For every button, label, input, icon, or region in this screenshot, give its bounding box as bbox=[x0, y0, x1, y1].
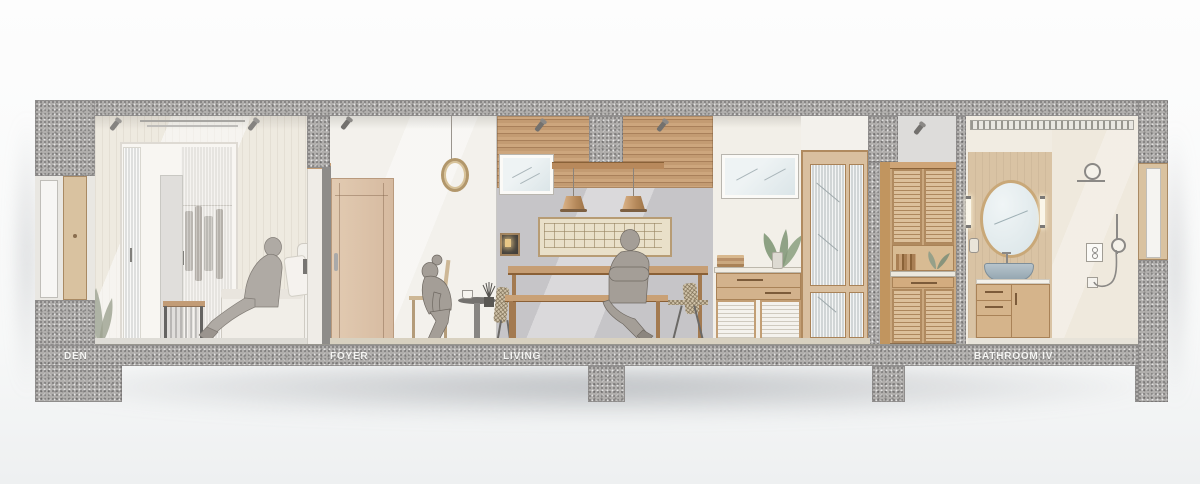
drawer-handle-icon bbox=[985, 306, 1003, 308]
pendant-lamp-rim bbox=[620, 209, 647, 212]
pendant-lamp-rim bbox=[560, 209, 587, 212]
door-panel-line bbox=[383, 183, 384, 341]
vanity-drawer-line bbox=[977, 315, 1011, 316]
glass-door-pane bbox=[849, 164, 864, 286]
vanity-divider bbox=[1011, 285, 1012, 337]
bathroom-shower-wall bbox=[1052, 130, 1138, 342]
wardrobe-handle-icon bbox=[130, 248, 132, 262]
books-stack bbox=[717, 255, 744, 267]
architectural-section-drawing: DEN FOYER LIVING BATHROOM IV bbox=[0, 0, 1200, 484]
bathroom-ceiling-vent bbox=[970, 120, 1134, 130]
drawer-handle-icon bbox=[765, 292, 791, 294]
woman-seated-silhouette bbox=[403, 250, 465, 348]
cabinet-louver-door bbox=[892, 289, 922, 343]
den-ceiling-diffuser bbox=[140, 120, 245, 122]
pendant-cord bbox=[633, 168, 634, 196]
cabinet-column-top bbox=[868, 116, 898, 162]
drawer-handle-icon bbox=[737, 279, 763, 281]
dining-chair-right-seat bbox=[668, 300, 708, 305]
drawer-divider bbox=[717, 287, 800, 288]
partition-wall bbox=[307, 168, 323, 345]
sideboard-drawers bbox=[716, 273, 801, 300]
top-slab bbox=[35, 100, 1168, 116]
vanity-sconce-left bbox=[966, 196, 971, 228]
room-label-foyer: FOYER bbox=[330, 350, 368, 364]
bathroom-oval-mirror bbox=[980, 180, 1042, 258]
left-window bbox=[35, 176, 95, 300]
vanity-cabinet bbox=[976, 284, 1050, 338]
drawer-handle-icon bbox=[911, 282, 937, 284]
vanity-sconce-right bbox=[1040, 196, 1045, 228]
vanity-drawer-line bbox=[977, 300, 1011, 301]
pendant-cord bbox=[573, 168, 574, 196]
cabinet-top-rail bbox=[890, 162, 956, 169]
man-seated-silhouette bbox=[596, 222, 666, 344]
ring-ornament bbox=[441, 158, 469, 192]
left-wall-lower bbox=[35, 300, 95, 345]
glass-door-pane bbox=[849, 292, 864, 338]
cabinet-column-right bbox=[956, 116, 966, 348]
cabinet-open-shelf bbox=[892, 245, 954, 271]
glass-door bbox=[801, 150, 869, 345]
nook-ceiling-shade bbox=[713, 116, 801, 128]
cabinet-louver-door bbox=[924, 289, 954, 343]
towel-ring-icon bbox=[969, 238, 979, 253]
mirror-reflection-line bbox=[736, 168, 758, 180]
mirror-reflection-line bbox=[512, 167, 532, 178]
right-window bbox=[1138, 163, 1168, 260]
room-label-bathroom: BATHROOM IV bbox=[974, 350, 1053, 364]
wall-lamp-glow bbox=[505, 239, 511, 247]
door-panel-line bbox=[339, 183, 340, 341]
window-wood-frame bbox=[63, 176, 87, 300]
room-label-living: LIVING bbox=[503, 350, 541, 364]
pedestal-table-column bbox=[474, 303, 480, 338]
living-column bbox=[589, 116, 623, 164]
tall-cabinet bbox=[890, 162, 956, 348]
door-panel-line bbox=[335, 195, 388, 196]
entry-door bbox=[331, 178, 394, 346]
basin-faucet-spout bbox=[1002, 252, 1011, 254]
shower-hose bbox=[1086, 246, 1126, 290]
cabinet-drawer bbox=[892, 277, 954, 288]
mirror-reflection-line bbox=[520, 173, 540, 184]
pendant-shelf bbox=[552, 162, 664, 169]
foundation-pier bbox=[872, 366, 905, 402]
window-handle-icon bbox=[73, 234, 77, 238]
wall-mirror-left bbox=[500, 155, 553, 194]
books-stack bbox=[896, 254, 916, 270]
ring-ornament-cord bbox=[451, 116, 452, 160]
door-jamb bbox=[322, 166, 331, 345]
sideboard bbox=[714, 267, 803, 348]
wall-lamp bbox=[500, 233, 520, 256]
den-ceiling-diffuser-2 bbox=[147, 125, 238, 127]
wall-mirror-right bbox=[722, 155, 798, 198]
mirror-reflection-line bbox=[994, 210, 1028, 224]
shower-head-icon bbox=[1084, 163, 1101, 180]
foyer-ceiling-shade bbox=[330, 116, 497, 129]
room-label-den: DEN bbox=[64, 350, 88, 364]
window-glass bbox=[1146, 168, 1161, 258]
window-glass bbox=[40, 180, 58, 298]
foundation-pier bbox=[588, 366, 625, 402]
cabinet-alcove bbox=[898, 116, 956, 162]
right-wall-upper bbox=[1138, 100, 1168, 163]
den-foyer-column bbox=[307, 116, 330, 168]
cabinet-louver-door bbox=[892, 169, 922, 245]
drawer-handle-icon bbox=[985, 291, 1003, 293]
mirror-reflection-line bbox=[764, 168, 786, 180]
right-wall-lower bbox=[1138, 260, 1168, 402]
man-reclining-silhouette bbox=[198, 230, 298, 348]
coffee-cup bbox=[462, 290, 473, 299]
shelf-plant-sprig bbox=[921, 250, 951, 270]
glass-door-pane bbox=[810, 292, 846, 338]
left-wall-upper bbox=[35, 100, 95, 176]
wardrobe-fluted-side-panel bbox=[123, 147, 141, 343]
shower-arm bbox=[1077, 180, 1105, 182]
plant-vase bbox=[772, 252, 783, 269]
door-handle-icon bbox=[1015, 293, 1017, 305]
cabinet-louver-door bbox=[924, 169, 954, 245]
bathroom-light-shaft bbox=[1052, 130, 1138, 342]
door-handle-icon bbox=[334, 253, 338, 271]
